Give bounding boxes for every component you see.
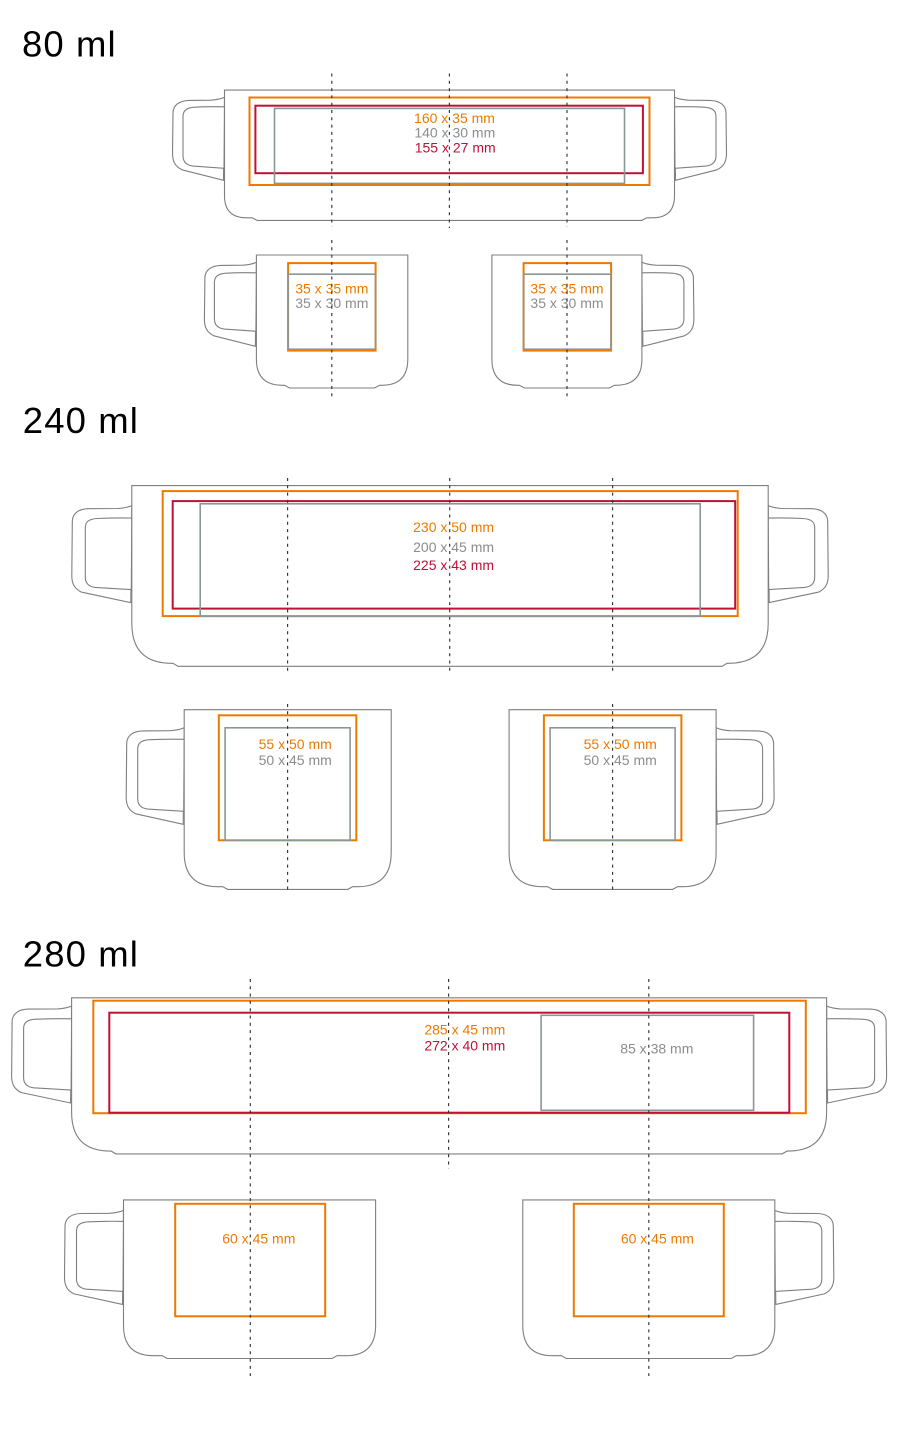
svg-text:50 x 45 mm: 50 x 45 mm [584, 752, 657, 768]
svg-text:160 x 35 mm: 160 x 35 mm [414, 110, 495, 126]
svg-text:272 x 40 mm: 272 x 40 mm [424, 1038, 505, 1054]
svg-text:85 x 38 mm: 85 x 38 mm [620, 1040, 693, 1056]
svg-text:140 x 30 mm: 140 x 30 mm [414, 125, 495, 141]
svg-text:240 ml: 240 ml [23, 400, 139, 441]
svg-text:155 x 27 mm: 155 x 27 mm [415, 139, 496, 155]
svg-text:50 x 45 mm: 50 x 45 mm [259, 752, 332, 768]
svg-text:230 x 50 mm: 230 x 50 mm [413, 519, 494, 535]
svg-text:225 x 43 mm: 225 x 43 mm [413, 557, 494, 573]
svg-text:80 ml: 80 ml [22, 24, 117, 65]
svg-text:60 x 45 mm: 60 x 45 mm [222, 1231, 295, 1247]
svg-text:60 x 45 mm: 60 x 45 mm [621, 1231, 694, 1247]
svg-text:200 x 45 mm: 200 x 45 mm [413, 539, 494, 555]
svg-text:55 x 50 mm: 55 x 50 mm [259, 736, 332, 752]
svg-text:55 x 50 mm: 55 x 50 mm [584, 736, 657, 752]
svg-text:280 ml: 280 ml [23, 934, 139, 975]
svg-text:285 x 45 mm: 285 x 45 mm [424, 1021, 505, 1037]
